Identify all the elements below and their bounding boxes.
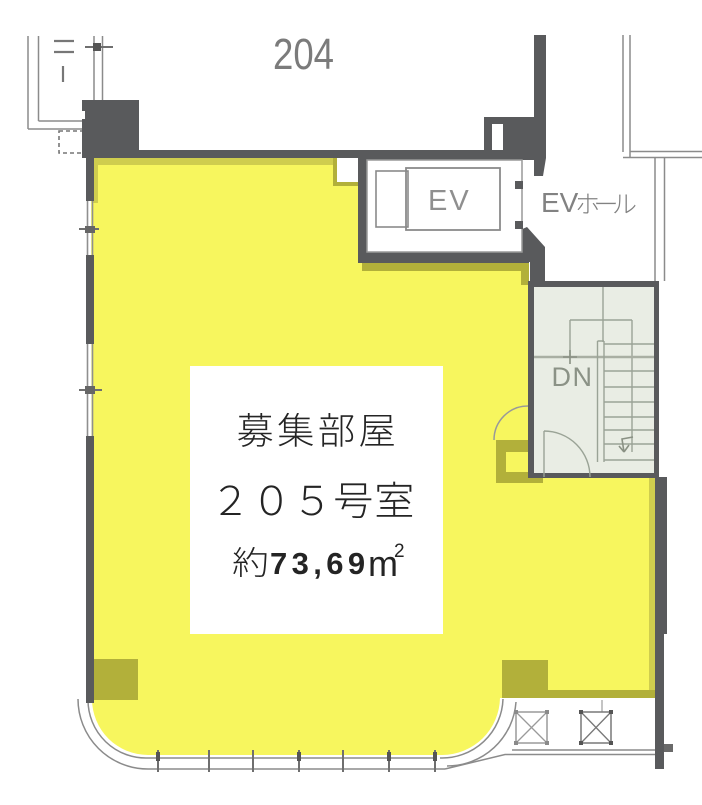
svg-text:204: 204	[273, 30, 334, 79]
svg-text:2: 2	[394, 541, 405, 562]
svg-text:73,69: 73,69	[270, 546, 370, 581]
svg-text:EV: EV	[541, 187, 579, 218]
svg-text:DN: DN	[552, 362, 594, 392]
svg-text:EV: EV	[428, 185, 471, 217]
